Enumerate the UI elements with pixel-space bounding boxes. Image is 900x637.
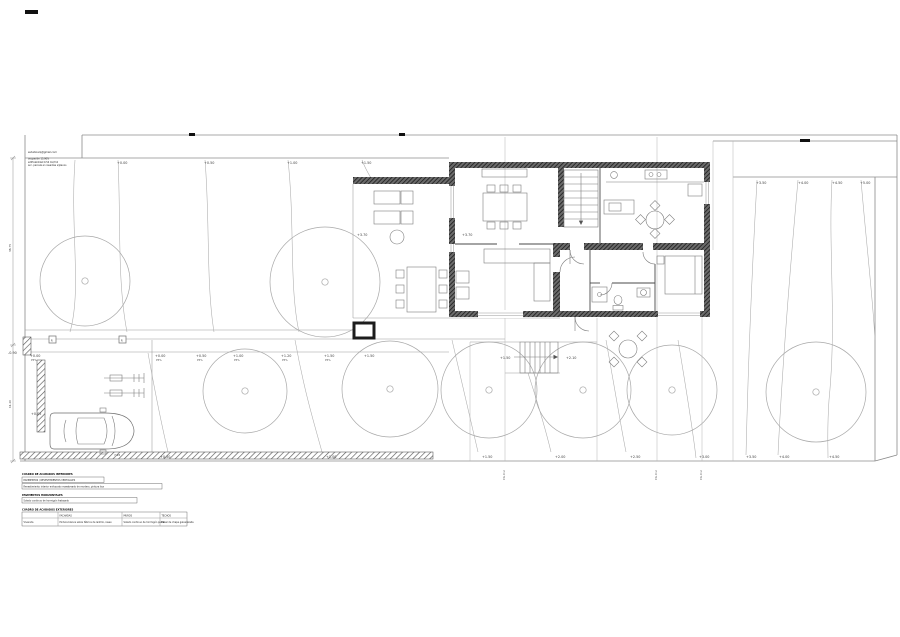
bedroom: [657, 256, 702, 294]
legend-pav-title: PAVIMENTOS HORIZONTALES: [22, 493, 63, 497]
planter: [354, 323, 374, 338]
survey-lines: [470, 137, 733, 461]
stairs: [564, 170, 598, 227]
contour-lines: [70, 160, 875, 458]
kitchen: [604, 170, 704, 238]
slope-label: P5%: [282, 358, 288, 362]
retaining-wall: [20, 452, 433, 459]
boundary-tick: [399, 133, 405, 136]
terrace-wall: [353, 177, 449, 184]
breakfast-table: [646, 211, 664, 229]
site-plan-drawing: R R 7.95: [0, 0, 900, 637]
elevation-label: +3.50: [756, 181, 766, 185]
slope-label: P5%: [325, 358, 331, 362]
tree: [270, 227, 380, 337]
legend-pav-row1: Solado continuo de hormigón fratasado: [24, 500, 70, 503]
retaining-wall: [37, 360, 45, 432]
sofa-chaise: [534, 263, 550, 301]
house-west-wall: [449, 162, 455, 317]
elevation-labels: +0.00+0.50+1.00+1.50+3.50+4.00+4.50+5.00…: [8, 161, 870, 459]
legend-int-title: CUADRO DE ACABADOS INTERIORES: [22, 472, 73, 476]
armchair: [456, 287, 469, 299]
slope-label: P5%: [234, 358, 240, 362]
legend-ext-col1: FACHADAS: [60, 515, 73, 518]
sideboard: [482, 169, 527, 177]
fridge: [688, 184, 702, 196]
tree: [203, 349, 287, 433]
legend-ext-col2: MUROS: [124, 515, 133, 518]
garage-width-dim: 7.95: [114, 453, 120, 457]
elevation-label: +3.70: [357, 233, 367, 237]
bathroom: [592, 287, 650, 310]
house: [448, 162, 711, 331]
elevation-label: +1.50: [482, 455, 492, 459]
legend-ext-table: FACHADAS MUROS TECHOS Vivienda Pintura b…: [22, 512, 194, 526]
elevation-label: +4.50: [829, 455, 839, 459]
legend-ext-title: CUADRO DE ACABADOS EXTERIORES: [22, 508, 73, 512]
legend-ext-r1c2: Solado continuo de hormigón pulido: [124, 521, 166, 524]
grille-marker: R: [49, 336, 56, 343]
legend: CUADRO DE ACABADOS INTERIORES PAVIMENTOS…: [22, 472, 194, 526]
elevation-label: +3.50: [746, 455, 756, 459]
house-north-wall: [449, 162, 710, 168]
elevation-label: +1.50: [361, 161, 371, 165]
elevation-label: +2.50: [630, 455, 640, 459]
elevation-label: +1.20: [281, 354, 291, 358]
project-notes: estudioarq@gmail.com ocupación 15.90% ed…: [28, 150, 67, 167]
legend-ext-col3: TECHOS: [162, 515, 172, 518]
elevation-label: +3.00: [699, 455, 709, 459]
elevation-label: +2.10: [566, 356, 576, 360]
note-line-3: acc. parcela en rasantes s/planos: [28, 164, 67, 167]
tree: [535, 342, 631, 438]
note-email: estudioarq@gmail.com: [28, 150, 57, 154]
dim-left-upper: 38.75: [8, 244, 12, 252]
slope-label: P5%: [156, 358, 162, 362]
dimension-lines: 38.75 11.20: [8, 156, 16, 463]
tree: [441, 342, 537, 438]
car: [50, 408, 134, 454]
boundary-tick: [189, 133, 195, 136]
site-plan-page: R R 7.95: [0, 0, 900, 637]
exterior-stair: [514, 342, 558, 373]
elevation-label: -0.90: [8, 351, 17, 355]
elevation-label: +1.00: [326, 455, 336, 459]
legend-ext-r1c1: Pintura blanca sobre fábrica de ladrillo…: [60, 521, 113, 524]
living-room: [456, 249, 550, 301]
elevation-label: +2.00: [555, 455, 565, 459]
legend-ext-r1c0: Vivienda: [24, 521, 34, 524]
slope-label: P5%: [31, 358, 37, 362]
sun-lounger: [374, 211, 413, 224]
elevation-label: +1.50: [364, 354, 374, 358]
survey-tag: P.G.O.U.: [654, 470, 658, 480]
shower: [592, 287, 607, 302]
elevation-label: +0.50: [196, 354, 206, 358]
tree: [766, 342, 866, 442]
legend-ext-r1c3: Panel de chapa galvanizada: [162, 521, 195, 524]
kitchen-island: [604, 200, 634, 214]
nightstand: [657, 256, 664, 264]
north-tick: [25, 10, 38, 14]
elevation-label: +1.00: [233, 354, 243, 358]
elevation-label: +1.50: [324, 354, 334, 358]
door-arcs: [560, 250, 655, 331]
cooktop: [645, 170, 667, 179]
elevation-label: +0.00: [155, 354, 165, 358]
elevation-label: +4.00: [798, 181, 808, 185]
elevation-label: +0.50: [204, 161, 214, 165]
elevation-label: +0.50: [160, 455, 170, 459]
outdoor-dining-table: [396, 267, 447, 312]
legend-int-row1: PAVIMENTOS / REVESTIMIENTOS VERTICALES: [24, 479, 76, 482]
kitchen-sink: [611, 172, 618, 179]
bed: [665, 256, 702, 294]
patio-table: [609, 331, 647, 367]
side-table: [390, 230, 404, 244]
boundary-lines: [20, 10, 897, 461]
elevation-label: +1.50: [500, 356, 510, 360]
sun-lounger: [374, 191, 413, 204]
sliding-gate-symbol: [104, 373, 144, 383]
elevation-label: +1.00: [287, 161, 297, 165]
elevation-label: +0.00: [30, 354, 40, 358]
interior-walls: [455, 168, 710, 317]
armchair: [456, 271, 469, 283]
dining-area: [482, 169, 527, 229]
elevation-label: +0.05: [31, 412, 41, 416]
toilet: [614, 296, 622, 305]
grille-marker: R: [119, 336, 126, 343]
elevation-label: +4.50: [832, 181, 842, 185]
sofa: [484, 249, 550, 263]
gate-post: [23, 337, 31, 355]
slope-label: P5%: [197, 358, 203, 362]
elevation-label: +3.70: [462, 233, 472, 237]
survey-tag: P.G.O.U.: [502, 470, 506, 480]
terrace: [353, 177, 449, 338]
elevation-label: +0.00: [117, 161, 127, 165]
tree: [40, 236, 130, 326]
boundary-tick: [800, 139, 810, 142]
elevation-label: +4.00: [779, 455, 789, 459]
elevation-label: +5.00: [860, 181, 870, 185]
tree: [342, 341, 438, 437]
survey-tag: P.G.O.U.: [699, 470, 703, 480]
sliding-gate-symbol: [104, 388, 144, 398]
legend-int-row2: Revestimiento interior enfoscado maestre…: [24, 486, 105, 489]
survey-tags: P.G.O.U.P.G.O.U.P.G.O.U.: [502, 470, 703, 480]
dim-left-lower: 11.20: [8, 400, 12, 408]
